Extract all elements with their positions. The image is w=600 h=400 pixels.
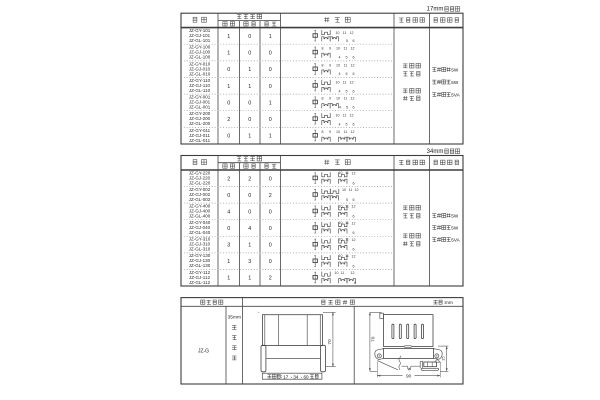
svg-text:0: 0 [248,100,251,106]
svg-text:6: 6 [353,198,355,202]
svg-text:12: 12 [351,271,355,275]
svg-text:6: 6 [353,231,355,235]
svg-text:3: 3 [227,243,230,249]
svg-text:12: 12 [352,205,356,209]
svg-text:4: 4 [339,106,341,110]
svg-text:0: 0 [269,67,272,73]
svg-text:0: 0 [248,209,251,215]
svg-text:1: 1 [227,34,230,40]
svg-text:2: 2 [227,176,230,182]
svg-text:6: 6 [353,39,355,43]
svg-text:4: 4 [248,226,251,232]
svg-text:0: 0 [269,243,272,249]
svg-text:11: 11 [341,271,345,275]
svg-text:6: 6 [353,72,355,76]
svg-text:11: 11 [344,63,348,67]
svg-text:10: 10 [336,114,340,118]
svg-text:JZ-GL-130: JZ-GL-130 [189,263,211,268]
svg-text:0: 0 [227,100,230,106]
svg-text:0: 0 [248,117,251,123]
svg-text:1: 1 [248,84,251,90]
svg-text:9: 9 [329,63,331,67]
svg-text:11: 11 [345,238,349,242]
svg-text:1: 1 [227,84,230,90]
svg-text:4: 4 [339,55,341,59]
svg-text:1: 1 [248,67,251,73]
svg-text:5W: 5W [451,80,459,85]
svg-text:JZ-GL-220: JZ-GL-220 [189,180,211,185]
svg-text:JZ-GL-200: JZ-GL-200 [189,121,211,126]
svg-text:5: 5 [346,89,348,93]
svg-text:JZ-GL-002: JZ-GL-002 [189,197,211,202]
svg-text:12: 12 [351,47,355,51]
svg-text:5VA: 5VA [451,238,460,243]
svg-text:10: 10 [339,221,343,225]
svg-text:9: 9 [329,130,331,134]
svg-text:6: 6 [353,55,355,59]
svg-text:10: 10 [339,238,343,242]
svg-text:12: 12 [350,31,354,35]
svg-text:0: 0 [269,51,272,57]
svg-text:JZ-GL-010: JZ-GL-010 [189,71,211,76]
svg-text:10: 10 [335,271,339,275]
svg-text:5W: 5W [451,68,459,73]
svg-text:11: 11 [345,171,349,175]
svg-text:4: 4 [339,72,341,76]
svg-text:8: 8 [322,63,324,67]
svg-text:10: 10 [339,204,343,208]
svg-text:1: 1 [227,276,230,282]
svg-text:90: 90 [406,373,412,379]
svg-text:5: 5 [346,72,348,76]
svg-text:60: 60 [304,374,310,379]
svg-text:0: 0 [248,193,251,199]
svg-text:1: 1 [227,51,230,57]
svg-text:11: 11 [344,130,348,134]
svg-text:12: 12 [355,188,359,192]
svg-text:1: 1 [227,259,230,265]
svg-text:11: 11 [345,254,349,258]
svg-text:2: 2 [269,193,272,199]
svg-text:0: 0 [269,259,272,265]
svg-text:JZ-G: JZ-G [198,349,209,355]
svg-text:12: 12 [352,255,356,259]
svg-text:0: 0 [269,84,272,90]
svg-text:11: 11 [343,81,347,85]
svg-text:10: 10 [336,81,340,85]
svg-text:10: 10 [336,130,340,134]
svg-text:0: 0 [269,176,272,182]
svg-text:JZ-GL-001: JZ-GL-001 [189,105,211,110]
svg-text:0: 0 [227,226,230,232]
svg-text:JZ-GL-040: JZ-GL-040 [189,230,211,235]
svg-text:10: 10 [336,63,340,67]
svg-text:5: 5 [346,198,348,202]
svg-text:4: 4 [339,89,341,93]
svg-text:12: 12 [352,221,356,225]
svg-text:8: 8 [322,130,324,134]
svg-text:12: 12 [351,130,355,134]
svg-text:6: 6 [353,264,355,268]
svg-text:70: 70 [371,336,377,342]
svg-text:6: 6 [354,281,356,285]
svg-text:34: 34 [293,374,299,379]
svg-text:0: 0 [248,34,251,40]
svg-text::mm: :mm [444,301,453,306]
svg-text:8: 8 [322,97,324,101]
svg-text:11: 11 [349,188,353,192]
svg-text:10: 10 [339,254,343,258]
svg-text:4: 4 [339,123,341,127]
svg-text:6: 6 [353,106,355,110]
svg-text:9: 9 [329,47,331,51]
svg-text:10: 10 [336,47,340,51]
svg-text:0: 0 [269,209,272,215]
svg-text:5W: 5W [451,214,459,219]
svg-text:0: 0 [269,226,272,232]
svg-text:5W: 5W [451,226,459,231]
svg-text:6: 6 [353,89,355,93]
svg-text:6: 6 [353,123,355,127]
svg-text:17mm: 17mm [427,7,444,13]
svg-text:0: 0 [269,117,272,123]
svg-text:12: 12 [350,81,354,85]
svg-text:6: 6 [353,248,355,252]
svg-text:1: 1 [248,134,251,140]
svg-text:1: 1 [269,34,272,40]
svg-text:5: 5 [346,106,348,110]
svg-text:2: 2 [269,276,272,282]
svg-text:10: 10 [339,171,343,175]
svg-text:0: 0 [227,67,230,73]
svg-text:11: 11 [345,221,349,225]
svg-text:JZ-GL-101: JZ-GL-101 [189,38,211,43]
svg-text:8: 8 [322,47,324,51]
svg-text:9: 9 [329,97,331,101]
svg-text:JZ-GL-112: JZ-GL-112 [189,280,211,285]
svg-text:15: 15 [440,356,445,361]
svg-text:6: 6 [353,215,355,219]
svg-text:JZ-GL-100: JZ-GL-100 [189,55,211,60]
svg-text:1: 1 [248,243,251,249]
svg-text:12: 12 [350,114,354,118]
svg-text:5: 5 [346,39,348,43]
svg-text:35mm: 35mm [228,314,241,320]
svg-text:11: 11 [344,97,348,101]
svg-text:2: 2 [248,176,251,182]
svg-text:1: 1 [248,276,251,282]
svg-text:10: 10 [336,97,340,101]
svg-text:4: 4 [227,209,230,215]
svg-text:JZ-GL-011: JZ-GL-011 [189,138,211,143]
svg-text:1: 1 [269,100,272,106]
svg-text:JZ-GL-110: JZ-GL-110 [189,88,211,93]
svg-text:5VA: 5VA [451,93,460,98]
svg-text:12: 12 [351,97,355,101]
svg-text:34mm: 34mm [427,149,444,155]
svg-text:11: 11 [345,204,349,208]
svg-text:0: 0 [227,134,230,140]
svg-text:11: 11 [343,114,347,118]
svg-text:11: 11 [343,31,347,35]
svg-text:JZ-GL-310: JZ-GL-310 [189,247,211,252]
svg-text:5: 5 [346,123,348,127]
svg-text:2: 2 [227,117,230,123]
svg-text:1: 1 [269,134,272,140]
svg-text:JZ-GL-400: JZ-GL-400 [189,214,211,219]
svg-text:17: 17 [283,374,289,379]
svg-text:3: 3 [248,259,251,265]
svg-text:70: 70 [327,339,333,345]
svg-text:11: 11 [344,47,348,51]
svg-text:12: 12 [352,172,356,176]
svg-text:12: 12 [352,238,356,242]
svg-text:10: 10 [336,31,340,35]
svg-text:0: 0 [227,193,230,199]
svg-text:6: 6 [353,181,355,185]
svg-text:12: 12 [351,63,355,67]
svg-text:10: 10 [342,188,346,192]
svg-text:0: 0 [248,51,251,57]
svg-text:5: 5 [346,55,348,59]
